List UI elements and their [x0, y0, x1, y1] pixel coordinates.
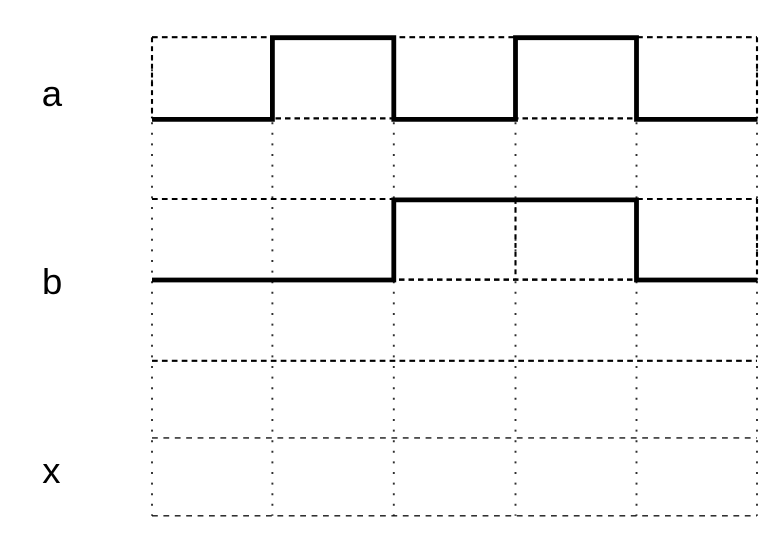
svg-text:b: b [42, 261, 62, 302]
svg-text:a: a [42, 73, 63, 114]
svg-text:x: x [42, 450, 60, 491]
